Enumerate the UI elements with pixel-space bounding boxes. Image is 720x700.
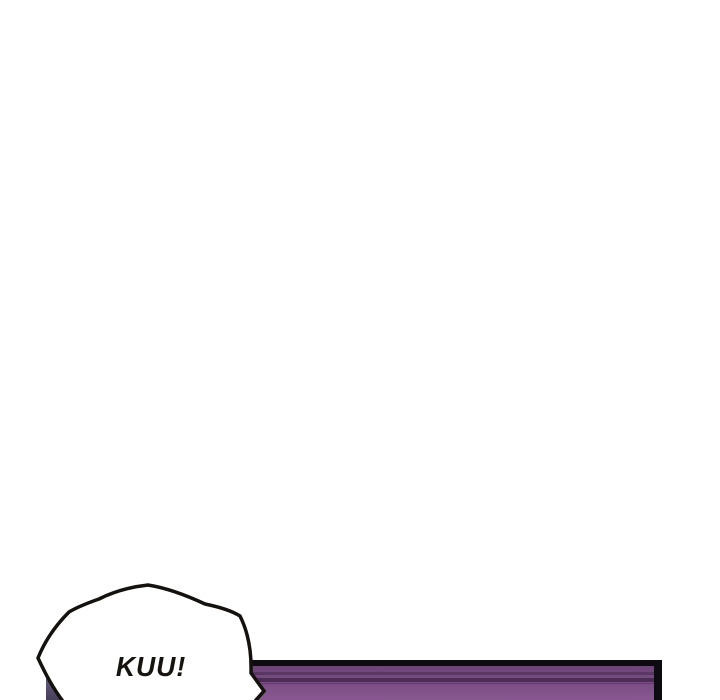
speech-bubble-layer: [0, 0, 720, 700]
speech-bubble-text: KUU!: [75, 651, 227, 683]
comic-page: KUU!: [0, 0, 720, 700]
